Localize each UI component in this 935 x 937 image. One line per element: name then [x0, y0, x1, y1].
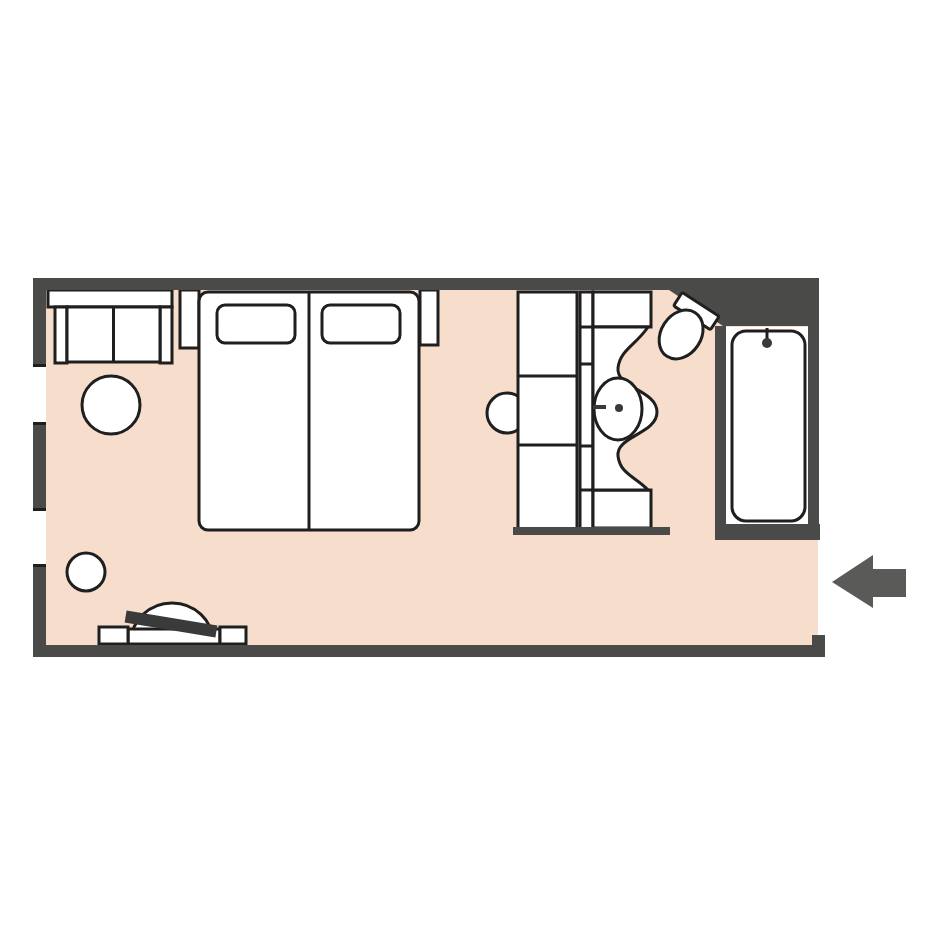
- window-upper: [33, 364, 46, 425]
- bathtub-basin: [732, 331, 805, 521]
- nightstand-right: [420, 290, 438, 345]
- twin-beds-icon: [199, 292, 419, 530]
- sofa-back: [48, 290, 172, 307]
- window-cap: [33, 564, 46, 567]
- tub-faucet-dot: [762, 338, 772, 348]
- bathtub-icon: [726, 327, 808, 525]
- entrance-arrow-icon: [832, 555, 906, 608]
- closet-icon: [518, 292, 577, 529]
- nightstand-left: [180, 290, 199, 348]
- wall-top: [33, 278, 819, 290]
- window-lower: [33, 508, 46, 567]
- wall-left-upper: [33, 278, 46, 364]
- vanity-sink-icon: [593, 292, 657, 528]
- window-cap: [33, 364, 46, 367]
- vanity-bottom-cabinet: [593, 490, 651, 528]
- wall-bottom-end-cap: [812, 635, 825, 657]
- bathroom-partition-wall: [513, 527, 670, 535]
- stool-icon: [67, 553, 105, 591]
- sink-faucet-handle: [593, 405, 606, 409]
- tub-wall-right: [808, 326, 819, 538]
- sink-drain-dot: [615, 404, 623, 412]
- closet-partition: [580, 292, 593, 529]
- pillow-right: [322, 305, 400, 343]
- window-cap: [33, 508, 46, 511]
- tub-wall-bottom: [715, 524, 820, 540]
- closet-body: [518, 292, 577, 529]
- bench-leg-left: [99, 627, 128, 644]
- round-table-icon: [82, 376, 140, 434]
- bench-leg-right: [220, 627, 246, 644]
- wall-left-lower: [33, 567, 46, 657]
- vanity-top-cabinet: [593, 292, 651, 327]
- tub-wall-left: [715, 326, 726, 538]
- window-cap: [33, 422, 46, 425]
- floor-plan: [0, 0, 935, 937]
- pillow-left: [217, 305, 295, 343]
- sofa-icon: [48, 290, 172, 363]
- sofa-armrest-left: [55, 307, 67, 363]
- wall-bottom: [33, 645, 825, 657]
- sofa-armrest-right: [160, 307, 172, 363]
- wall-left-middle: [33, 425, 46, 508]
